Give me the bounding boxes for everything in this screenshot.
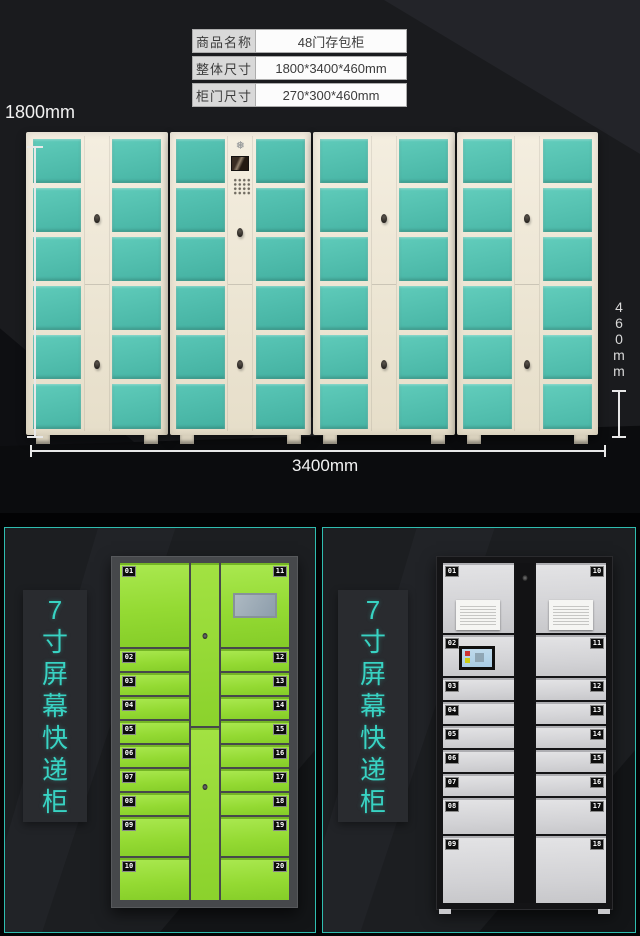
spec-row: 整体尺寸 1800*3400*460mm	[192, 56, 407, 80]
spec-label-door-size: 柜门尺寸	[192, 83, 256, 107]
white-locker-panel: 7寸屏幕快递柜 01020304050607080910111213141516…	[322, 527, 636, 933]
locker-foot	[144, 435, 158, 444]
depth-dimension-label: 460mm	[608, 300, 630, 379]
door-column: 11121314151617181920	[221, 563, 290, 900]
locker-foot	[431, 435, 445, 444]
locker-foot	[574, 435, 588, 444]
door-column: 101112131415161718	[536, 563, 607, 903]
lock-strip	[514, 136, 540, 431]
locker-door: 05	[443, 726, 514, 748]
locker-door: 19	[221, 817, 290, 856]
door-number-badge: 05	[123, 725, 135, 734]
door-column	[540, 136, 594, 431]
spec-value-door-size: 270*300*460mm	[256, 83, 407, 107]
locker-door: 09	[120, 817, 189, 856]
locker-unit	[26, 132, 168, 435]
height-dimension-line	[27, 146, 43, 438]
locker-door	[320, 188, 369, 232]
locker-door	[256, 335, 305, 379]
door-number-badge: 17	[274, 773, 286, 782]
door-column	[461, 136, 515, 431]
spec-value-overall-size: 1800*3400*460mm	[256, 56, 407, 80]
locker-door: 10	[536, 563, 607, 633]
door-number-badge: 12	[274, 653, 286, 662]
locker-door	[176, 237, 225, 281]
lock-icon	[524, 214, 530, 223]
caption-char: 屏	[360, 658, 386, 690]
notice-sheet	[456, 600, 500, 630]
caption-char: 递	[42, 754, 68, 786]
center-door	[191, 563, 219, 726]
door-number-badge: 10	[591, 567, 603, 576]
caption-char: 7	[366, 594, 380, 626]
door-number-badge: 10	[123, 862, 135, 871]
locker-door	[256, 188, 305, 232]
center-door	[191, 728, 219, 900]
lock-icon	[522, 575, 527, 581]
locker-door	[112, 237, 161, 281]
depth-char: 4	[615, 300, 623, 315]
locker-door	[463, 139, 512, 183]
door-number-badge: 15	[591, 754, 603, 763]
depth-char: m	[613, 364, 625, 379]
locker-door	[256, 237, 305, 281]
door-column	[110, 136, 164, 431]
caption-char: 寸	[360, 626, 386, 658]
locker-door	[176, 188, 225, 232]
lock-strip: ❅	[227, 136, 253, 431]
locker-door: 07	[120, 769, 189, 791]
locker-door	[176, 286, 225, 330]
lock-icon	[381, 360, 387, 369]
locker-door	[256, 286, 305, 330]
door-number-badge: 16	[591, 778, 603, 787]
lock-icon	[237, 228, 243, 237]
locker-door: 02	[120, 649, 189, 671]
express-locker-section: 7寸屏幕快递柜 01020304050607080910111213141516…	[0, 513, 640, 936]
lock-icon	[524, 360, 530, 369]
locker-door: 05	[120, 721, 189, 743]
locker-unit: ❅	[170, 132, 312, 435]
door-number-badge: 11	[274, 567, 286, 576]
locker-door	[112, 384, 161, 428]
spec-row: 商品名称 48门存包柜	[192, 29, 407, 53]
door-column	[397, 136, 451, 431]
locker-door	[256, 384, 305, 428]
door-column: 01020304050607080910	[120, 563, 189, 900]
door-number-badge: 03	[123, 677, 135, 686]
locker-door: 06	[120, 745, 189, 767]
depth-dimension-line	[612, 390, 626, 438]
locker-door	[463, 286, 512, 330]
locker-door: 17	[221, 769, 290, 791]
depth-char: 6	[615, 316, 623, 331]
lock-strip	[371, 136, 397, 431]
locker-door: 13	[536, 702, 607, 724]
locker-foot	[180, 435, 194, 444]
locker-door	[176, 139, 225, 183]
locker-door: 10	[120, 858, 189, 900]
door-number-badge: 07	[123, 773, 135, 782]
locker-door: 18	[221, 793, 290, 815]
lock-icon	[237, 360, 243, 369]
locker-door: 08	[443, 798, 514, 834]
green-locker-panel: 7寸屏幕快递柜 01020304050607080910111213141516…	[4, 527, 316, 933]
door-number-badge: 15	[274, 725, 286, 734]
door-number-badge: 14	[591, 730, 603, 739]
locker-door	[463, 335, 512, 379]
locker-door: 20	[221, 858, 290, 900]
caption-char: 屏	[42, 658, 68, 690]
spec-table: 商品名称 48门存包柜 整体尺寸 1800*3400*460mm 柜门尺寸 27…	[192, 29, 407, 107]
panel-caption: 7寸屏幕快递柜	[23, 590, 87, 822]
locker-door	[112, 286, 161, 330]
locker-door: 14	[536, 726, 607, 748]
locker-door	[399, 384, 448, 428]
door-number-badge: 07	[446, 778, 458, 787]
door-number-badge: 06	[123, 749, 135, 758]
door-column	[174, 136, 228, 431]
locker-door	[399, 139, 448, 183]
width-dimension-label: 3400mm	[292, 456, 358, 476]
door-column: 010203040506070809	[443, 563, 514, 903]
locker-door	[463, 384, 512, 428]
locker-door: 14	[221, 697, 290, 719]
door-number-badge: 02	[446, 639, 458, 648]
locker-door: 06	[443, 750, 514, 772]
product-detail-image: 商品名称 48门存包柜 整体尺寸 1800*3400*460mm 柜门尺寸 27…	[0, 0, 640, 936]
door-number-badge: 05	[446, 730, 458, 739]
door-screen	[459, 646, 495, 670]
caption-char: 7	[48, 594, 62, 626]
locker-door: 16	[221, 745, 290, 767]
locker-door	[543, 237, 592, 281]
spec-value-product-name: 48门存包柜	[256, 29, 407, 53]
control-screen	[231, 156, 249, 171]
door-number-badge: 08	[123, 797, 135, 806]
lock-icon	[94, 214, 100, 223]
caption-char: 柜	[360, 786, 386, 818]
locker-door	[543, 139, 592, 183]
center-strip	[516, 563, 534, 903]
locker-door: 12	[536, 678, 607, 700]
door-number-badge: 09	[446, 840, 458, 849]
locker-door: 01	[120, 563, 189, 647]
depth-char: 0	[615, 332, 623, 347]
locker-door	[112, 335, 161, 379]
notice-sheet	[549, 600, 593, 630]
caption-char: 寸	[42, 626, 68, 658]
locker-door	[463, 237, 512, 281]
door-number-badge: 18	[274, 797, 286, 806]
locker-door: 04	[120, 697, 189, 719]
locker-door: 11	[221, 563, 290, 647]
locker-door: 02	[443, 635, 514, 676]
lock-icon	[94, 360, 100, 369]
locker-door	[463, 188, 512, 232]
door-number-badge: 09	[123, 821, 135, 830]
keypad	[233, 178, 251, 195]
locker-door: 15	[221, 721, 290, 743]
door-number-badge: 04	[446, 706, 458, 715]
lock-strip	[84, 136, 110, 431]
locker-door	[320, 237, 369, 281]
door-number-badge: 17	[591, 802, 603, 811]
locker-door: 16	[536, 774, 607, 796]
door-number-badge: 20	[274, 862, 286, 871]
locker-door: 11	[536, 635, 607, 676]
spec-row: 柜门尺寸 270*300*460mm	[192, 83, 407, 107]
locker-door: 13	[221, 673, 290, 695]
door-number-badge: 04	[123, 701, 135, 710]
door-column	[253, 136, 307, 431]
locker-door: 04	[443, 702, 514, 724]
green-express-locker-photo: 0102030405060708091011121314151617181920	[111, 556, 298, 908]
locker-foot	[287, 435, 301, 444]
locker-door: 17	[536, 798, 607, 834]
locker-door: 08	[120, 793, 189, 815]
locker-door	[543, 384, 592, 428]
spec-label-overall-size: 整体尺寸	[192, 56, 256, 80]
locker-door	[399, 237, 448, 281]
locker-door	[399, 286, 448, 330]
snowflake-logo-icon: ❅	[228, 139, 252, 152]
door-number-badge: 03	[446, 682, 458, 691]
locker-unit	[313, 132, 455, 435]
door-number-badge: 13	[274, 677, 286, 686]
door-number-badge: 14	[274, 701, 286, 710]
locker-door	[320, 139, 369, 183]
caption-char: 快	[42, 722, 68, 754]
locker-foot	[323, 435, 337, 444]
locker-foot	[467, 435, 481, 444]
door-number-badge: 12	[591, 682, 603, 691]
locker-door: 03	[120, 673, 189, 695]
locker-door: 12	[221, 649, 290, 671]
door-number-badge: 19	[274, 821, 286, 830]
door-number-badge: 02	[123, 653, 135, 662]
door-number-badge: 01	[123, 567, 135, 576]
locker-door	[399, 335, 448, 379]
spec-label-product-name: 商品名称	[192, 29, 256, 53]
door-number-badge: 18	[591, 840, 603, 849]
door-screen	[233, 593, 277, 618]
door-number-badge: 16	[274, 749, 286, 758]
lock-icon	[381, 214, 387, 223]
locker-door: 03	[443, 678, 514, 700]
door-number-badge: 08	[446, 802, 458, 811]
locker-door	[176, 384, 225, 428]
door-number-badge: 06	[446, 754, 458, 763]
locker-door: 18	[536, 836, 607, 903]
height-dimension-label: 1800mm	[5, 102, 75, 123]
locker-door	[112, 139, 161, 183]
depth-char: m	[613, 348, 625, 363]
locker-door	[543, 188, 592, 232]
caption-char: 幕	[360, 690, 386, 722]
lock-icon	[202, 633, 207, 639]
locker-door	[256, 139, 305, 183]
locker-door	[543, 335, 592, 379]
locker-door	[320, 335, 369, 379]
door-number-badge: 01	[446, 567, 458, 576]
panel-caption: 7寸屏幕快递柜	[338, 590, 408, 822]
locker-door	[320, 384, 369, 428]
locker-door: 09	[443, 836, 514, 903]
locker-door	[543, 286, 592, 330]
locker-door	[112, 188, 161, 232]
locker-door: 15	[536, 750, 607, 772]
caption-char: 柜	[42, 786, 68, 818]
locker-door	[176, 335, 225, 379]
lock-icon	[202, 784, 207, 790]
locker-door	[320, 286, 369, 330]
door-number-badge: 13	[591, 706, 603, 715]
caption-char: 幕	[42, 690, 68, 722]
caption-char: 递	[360, 754, 386, 786]
door-number-badge: 11	[591, 639, 603, 648]
locker-unit	[457, 132, 599, 435]
locker-door: 01	[443, 563, 514, 633]
white-express-locker-photo: 010203040506070809101112131415161718	[436, 556, 613, 910]
spec-section: 商品名称 48门存包柜 整体尺寸 1800*3400*460mm 柜门尺寸 27…	[0, 0, 640, 513]
main-locker-photo: ❅	[26, 132, 598, 435]
caption-char: 快	[360, 722, 386, 754]
center-strip	[191, 563, 219, 900]
door-column	[317, 136, 371, 431]
locker-door: 07	[443, 774, 514, 796]
locker-door	[399, 188, 448, 232]
